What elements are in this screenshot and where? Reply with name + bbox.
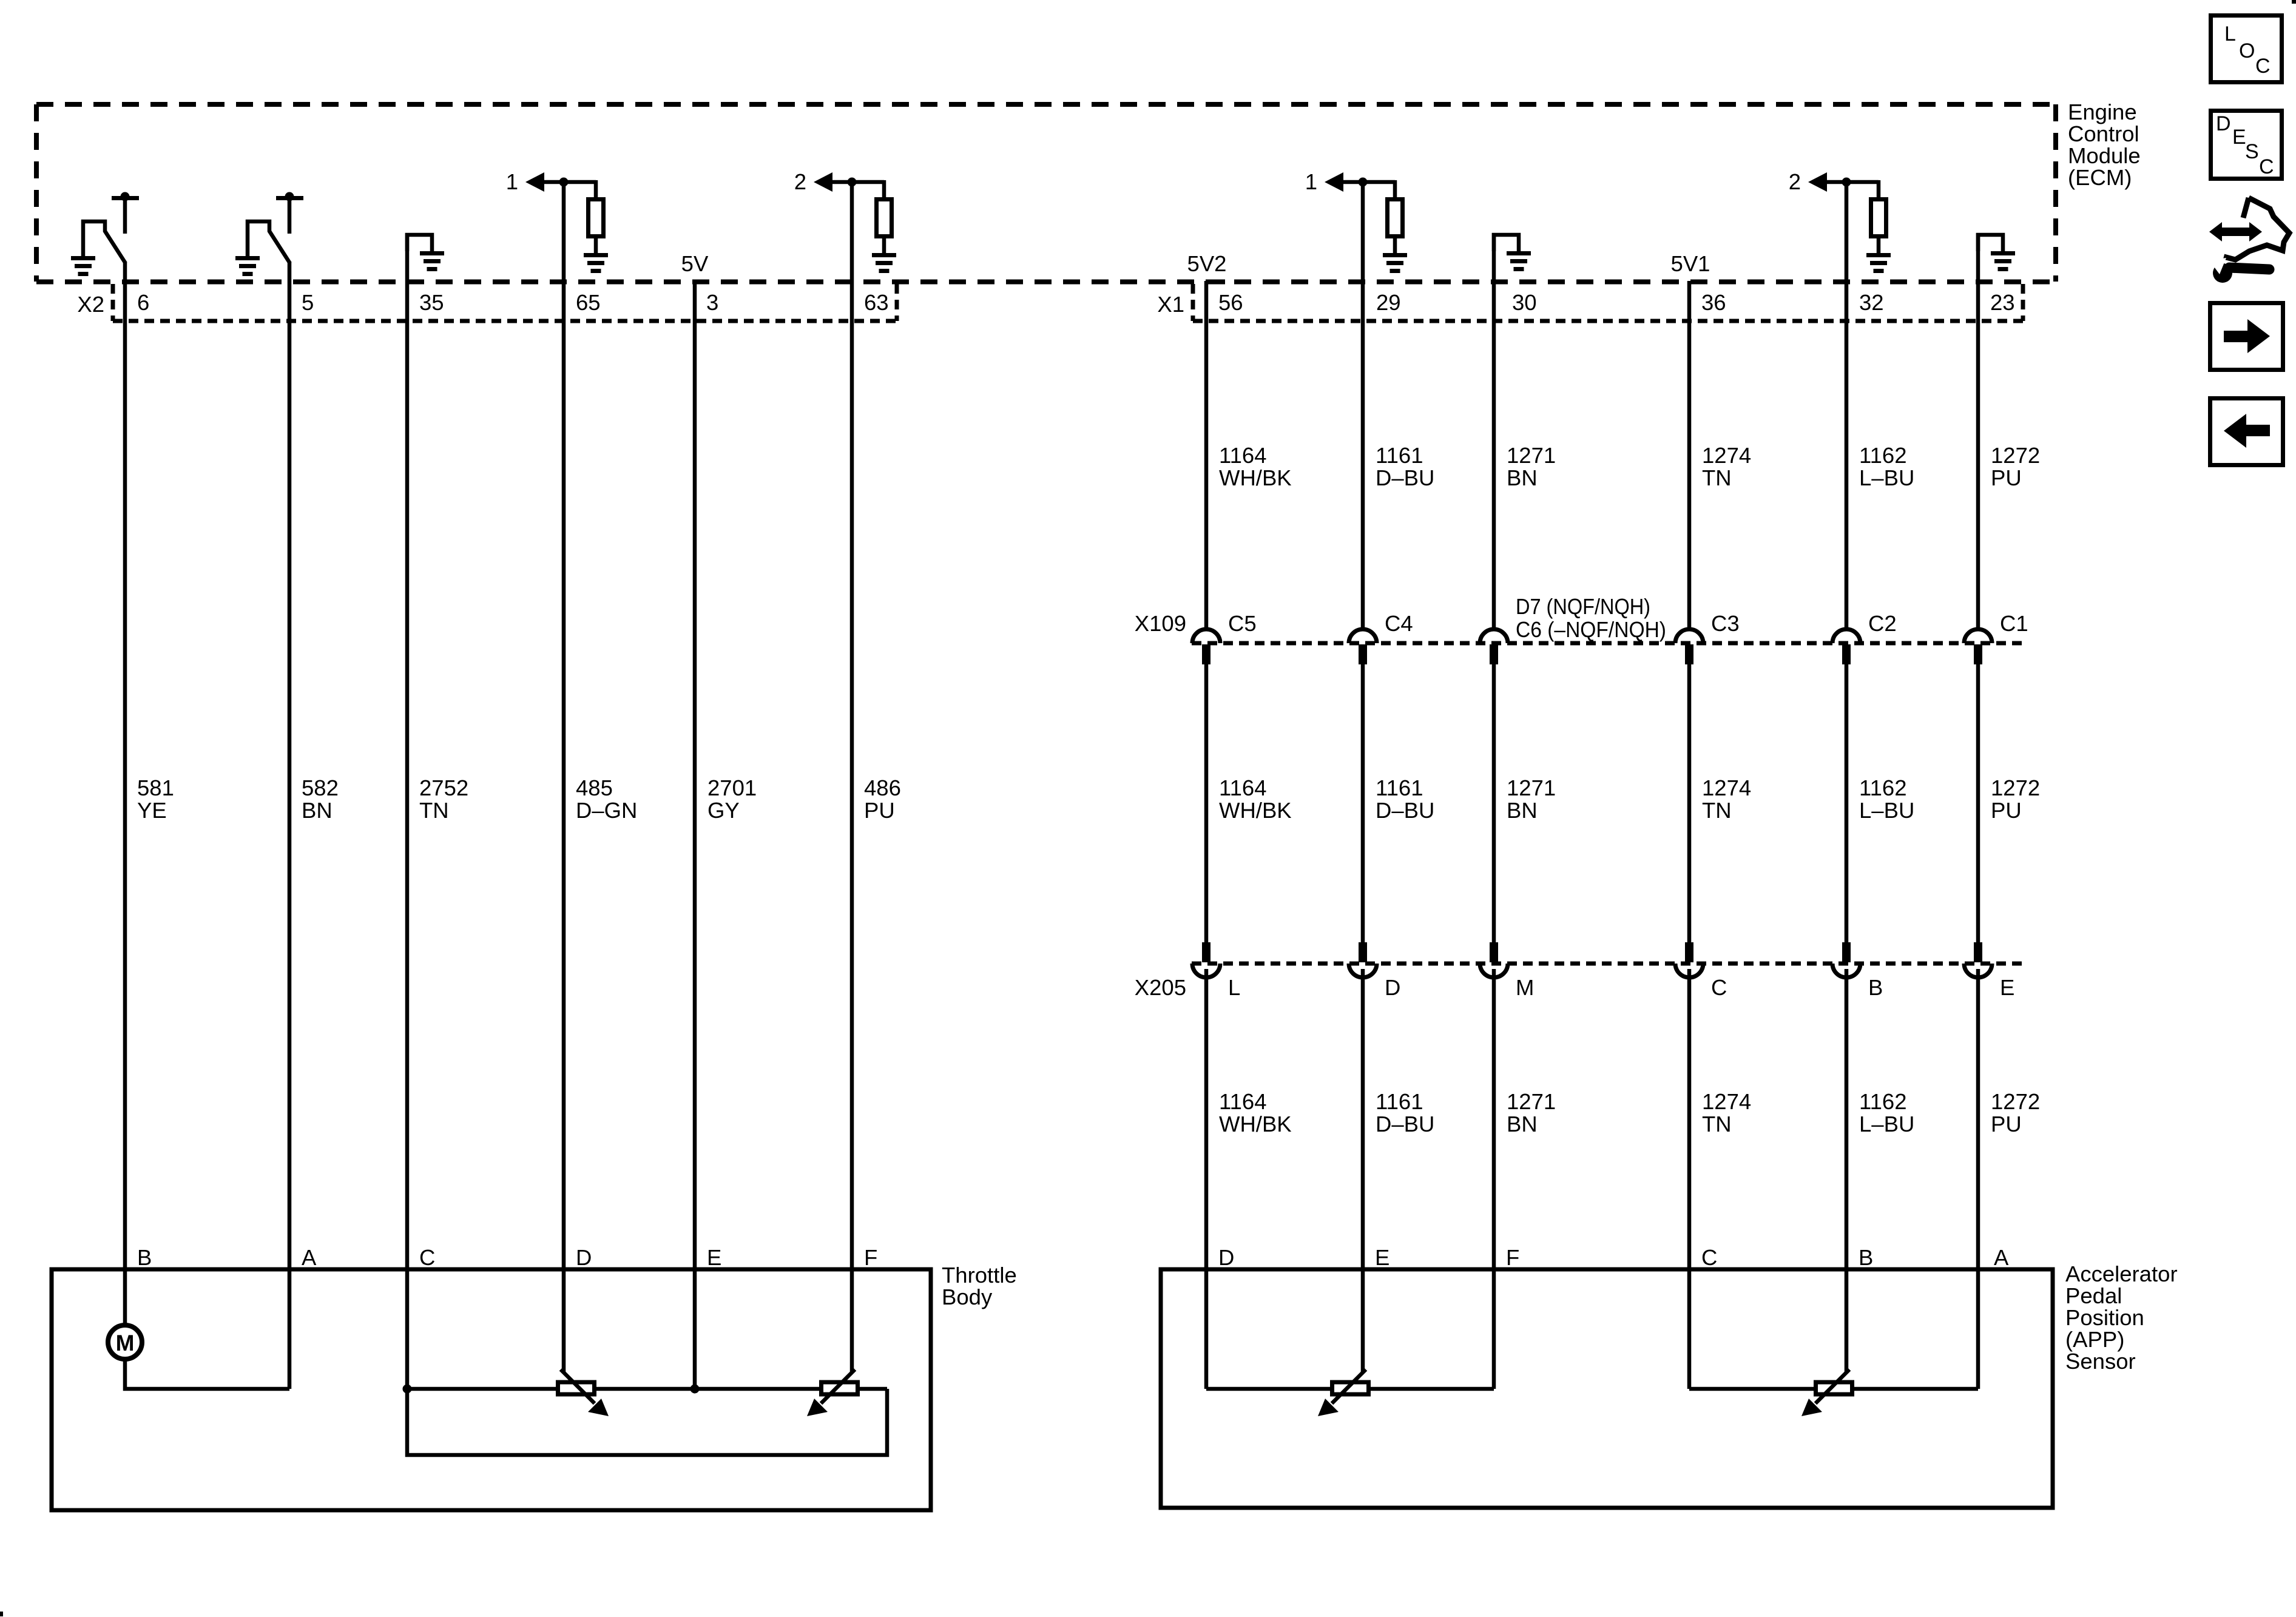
svg-text:C1: C1 <box>2000 611 2028 636</box>
svg-text:1161: 1161 <box>1376 775 1423 800</box>
svg-text:D7 (NQF/NQH): D7 (NQF/NQH) <box>1516 594 1650 619</box>
svg-text:WH/BK: WH/BK <box>1219 465 1292 490</box>
svg-text:PU: PU <box>1991 465 2022 490</box>
svg-text:65: 65 <box>576 290 601 315</box>
svg-text:A: A <box>1994 1245 2009 1270</box>
svg-text:Position: Position <box>2065 1305 2144 1330</box>
svg-text:D–GN: D–GN <box>576 798 637 823</box>
svg-text:582: 582 <box>302 775 339 800</box>
svg-text:D: D <box>1385 975 1400 1000</box>
svg-text:581: 581 <box>137 775 174 800</box>
svg-text:Throttle: Throttle <box>942 1263 1017 1288</box>
svg-text:Engine: Engine <box>2068 100 2137 124</box>
svg-text:D: D <box>576 1245 592 1270</box>
svg-text:C: C <box>1701 1245 1717 1270</box>
svg-text:1274: 1274 <box>1702 443 1751 468</box>
svg-text:D: D <box>1218 1245 1234 1270</box>
svg-text:B: B <box>137 1245 152 1270</box>
svg-text:Pedal: Pedal <box>2065 1283 2122 1308</box>
svg-text:1272: 1272 <box>1991 775 2040 800</box>
svg-text:(ECM): (ECM) <box>2068 165 2132 190</box>
svg-text:1164: 1164 <box>1219 775 1267 800</box>
svg-text:2: 2 <box>1789 169 1801 194</box>
svg-text:36: 36 <box>1701 290 1726 315</box>
svg-text:C2: C2 <box>1868 611 1897 636</box>
svg-text:M: M <box>116 1331 135 1355</box>
svg-text:1272: 1272 <box>1991 443 2040 468</box>
svg-text:M: M <box>1516 975 1534 1000</box>
svg-text:1274: 1274 <box>1702 1089 1751 1114</box>
svg-text:TN: TN <box>1702 798 1732 823</box>
svg-text:X2: X2 <box>77 292 104 317</box>
svg-text:TN: TN <box>1702 1112 1732 1136</box>
svg-text:X1: X1 <box>1157 292 1184 317</box>
svg-text:L: L <box>1228 975 1240 1000</box>
svg-text:C4: C4 <box>1385 611 1413 636</box>
svg-text:C3: C3 <box>1711 611 1740 636</box>
svg-text:Accelerator: Accelerator <box>2065 1261 2178 1286</box>
svg-text:29: 29 <box>1376 290 1401 315</box>
svg-text:A: A <box>302 1245 317 1270</box>
svg-text:YE: YE <box>137 798 167 823</box>
svg-text:5V1: 5V1 <box>1671 251 1710 276</box>
svg-text:C: C <box>419 1245 435 1270</box>
svg-text:1271: 1271 <box>1507 1089 1556 1114</box>
svg-text:D–BU: D–BU <box>1376 1112 1434 1136</box>
svg-text:1164: 1164 <box>1219 1089 1267 1114</box>
svg-text:56: 56 <box>1218 290 1243 315</box>
svg-text:30: 30 <box>1512 290 1537 315</box>
svg-text:L–BU: L–BU <box>1859 1112 1914 1136</box>
svg-text:2: 2 <box>794 169 806 194</box>
svg-text:E: E <box>1375 1245 1389 1270</box>
svg-text:TN: TN <box>419 798 449 823</box>
svg-text:BN: BN <box>1507 465 1538 490</box>
svg-text:5V2: 5V2 <box>1187 251 1227 276</box>
svg-text:63: 63 <box>864 290 889 315</box>
svg-text:1274: 1274 <box>1702 775 1751 800</box>
svg-text:TN: TN <box>1702 465 1732 490</box>
svg-text:B: B <box>1859 1245 1873 1270</box>
svg-text:X205: X205 <box>1135 975 1186 1000</box>
svg-text:485: 485 <box>576 775 613 800</box>
svg-text:1271: 1271 <box>1507 443 1556 468</box>
svg-text:S: S <box>2245 140 2259 163</box>
svg-text:D–BU: D–BU <box>1376 465 1434 490</box>
svg-text:D–BU: D–BU <box>1376 798 1434 823</box>
svg-text:F: F <box>1506 1245 1519 1270</box>
svg-text:WH/BK: WH/BK <box>1219 1112 1292 1136</box>
svg-text:5: 5 <box>302 290 314 315</box>
svg-text:L–BU: L–BU <box>1859 798 1914 823</box>
svg-text:BN: BN <box>302 798 333 823</box>
svg-text:1162: 1162 <box>1859 775 1907 800</box>
svg-text:C5: C5 <box>1228 611 1257 636</box>
svg-text:C: C <box>1711 975 1727 1000</box>
svg-text:X109: X109 <box>1135 611 1186 636</box>
svg-text:486: 486 <box>864 775 901 800</box>
svg-text:WH/BK: WH/BK <box>1219 798 1292 823</box>
svg-text:L–BU: L–BU <box>1859 465 1914 490</box>
svg-text:PU: PU <box>1991 1112 2022 1136</box>
svg-text:1161: 1161 <box>1376 1089 1423 1114</box>
svg-text:3: 3 <box>706 290 718 315</box>
svg-text:1: 1 <box>506 169 518 194</box>
svg-text:1271: 1271 <box>1507 775 1556 800</box>
svg-text:E: E <box>2000 975 2014 1000</box>
svg-text:Sensor: Sensor <box>2065 1349 2136 1374</box>
svg-text:D: D <box>2216 112 2231 135</box>
svg-text:32: 32 <box>1859 290 1884 315</box>
svg-text:BN: BN <box>1507 798 1538 823</box>
svg-text:5V: 5V <box>681 251 709 276</box>
svg-text:Module: Module <box>2068 143 2141 168</box>
svg-text:L: L <box>2224 22 2236 46</box>
svg-text:BN: BN <box>1507 1112 1538 1136</box>
svg-text:PU: PU <box>864 798 895 823</box>
svg-text:1161: 1161 <box>1376 443 1423 468</box>
svg-text:Body: Body <box>942 1284 993 1309</box>
svg-text:F: F <box>864 1245 877 1270</box>
svg-text:C6 (–NQF/NQH): C6 (–NQF/NQH) <box>1516 617 1666 642</box>
svg-text:C: C <box>2255 55 2271 78</box>
svg-text:35: 35 <box>419 290 444 315</box>
svg-text:1162: 1162 <box>1859 443 1907 468</box>
svg-text:23: 23 <box>1990 290 2015 315</box>
svg-text:2701: 2701 <box>707 775 757 800</box>
svg-text:C: C <box>2259 155 2274 178</box>
svg-text:GY: GY <box>707 798 740 823</box>
svg-text:O: O <box>2239 39 2255 62</box>
svg-text:B: B <box>1868 975 1883 1000</box>
svg-text:1: 1 <box>1305 169 1317 194</box>
svg-text:(APP): (APP) <box>2065 1327 2124 1352</box>
svg-text:E: E <box>707 1245 721 1270</box>
svg-text:E: E <box>2232 126 2246 149</box>
svg-text:1162: 1162 <box>1859 1089 1907 1114</box>
svg-text:PU: PU <box>1991 798 2022 823</box>
svg-text:2752: 2752 <box>419 775 468 800</box>
svg-text:6: 6 <box>137 290 149 315</box>
svg-text:1164: 1164 <box>1219 443 1267 468</box>
svg-text:1272: 1272 <box>1991 1089 2040 1114</box>
svg-text:Control: Control <box>2068 121 2139 146</box>
